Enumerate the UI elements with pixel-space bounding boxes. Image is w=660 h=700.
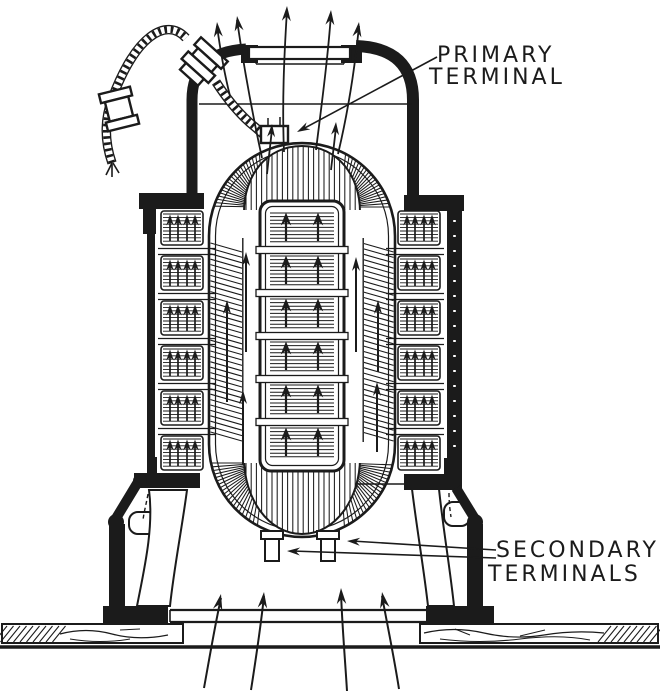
secondary-terminals-label-line1: SECONDARY (496, 538, 659, 563)
floor-and-air-duct (0, 610, 660, 647)
secondary-terminal-lugs (261, 531, 339, 561)
engraving-canvas: PRIMARY TERMINAL SECONDARY TERMINALS (0, 0, 660, 700)
secondary-terminals-label: SECONDARY TERMINALS (487, 538, 659, 587)
secondary-terminals-label-line2: TERMINALS (487, 562, 641, 587)
transformer-figure: PRIMARY TERMINAL SECONDARY TERMINALS (0, 0, 660, 700)
primary-terminal-label-line2: TERMINAL (428, 65, 565, 90)
primary-terminal-label: PRIMARY TERMINAL (428, 43, 565, 90)
